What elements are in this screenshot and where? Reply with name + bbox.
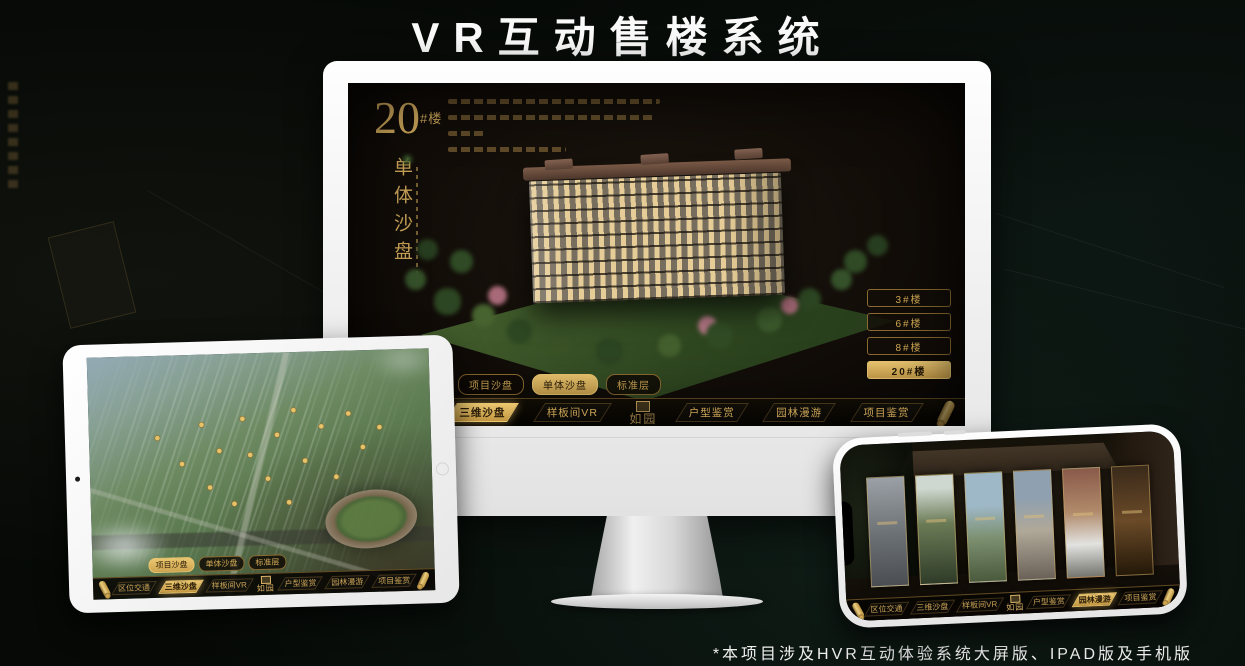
footnote-text: *本项目涉及HVR互动体验系统大屏版、IPAD版及手机版 [713, 640, 1193, 664]
gallery-panel-landscape[interactable] [915, 474, 958, 586]
ipad-tab-project-sandbox[interactable]: 项目沙盘 [148, 557, 194, 573]
building-3d-scene [403, 155, 913, 407]
description-line [448, 99, 660, 104]
description-line [448, 115, 653, 120]
phone-screen: 区位交通 三维沙盘 样板间VR 如园 户型鉴赏 园林漫游 项目鉴赏 [839, 431, 1181, 622]
gallery-panel-autumn[interactable] [1062, 467, 1105, 579]
description-line [448, 131, 484, 136]
seal-icon [636, 401, 650, 412]
floor-button-8[interactable]: 8#楼 [867, 337, 951, 355]
phone-mockup: 区位交通 三维沙盘 样板间VR 如园 户型鉴赏 园林漫游 项目鉴赏 [832, 423, 1188, 629]
tab-project-sandbox[interactable]: 项目沙盘 [458, 374, 524, 395]
panorama-gallery [866, 465, 1154, 588]
page-title: VR互动售楼系统 [0, 4, 1245, 65]
roof-gable [640, 153, 669, 165]
brand-logo-text: 如园 [1006, 603, 1024, 612]
phone-nav-item-garden[interactable]: 园林漫游 [1073, 591, 1116, 608]
background-gold-text-strip [8, 78, 18, 188]
brand-logo: 如园 [629, 401, 657, 425]
scroll-icon[interactable] [1162, 587, 1175, 605]
monitor-stand [591, 516, 723, 598]
monitor-nav-item-garden[interactable]: 园林漫游 [766, 402, 832, 423]
gallery-panel-interior[interactable] [1111, 465, 1154, 577]
brand-logo-text: 如园 [257, 585, 275, 593]
roof-gable [544, 158, 573, 170]
scroll-icon[interactable] [936, 399, 956, 426]
ipad-nav-item-project[interactable]: 项目鉴赏 [373, 573, 415, 589]
ipad-screen: 项目沙盘 单体沙盘 标准层 区位交通 三维沙盘 样板间VR 如园 户型鉴赏 园林… [87, 348, 436, 599]
block-number: 20 [374, 92, 420, 143]
phone-nav-item-vr[interactable]: 样板间VR [957, 596, 1003, 613]
scroll-icon[interactable] [98, 580, 112, 598]
brand-logo: 如园 [256, 576, 274, 593]
scroll-icon[interactable] [851, 601, 865, 619]
floor-button-20[interactable]: 20#楼 [867, 361, 951, 379]
brand-logo: 如园 [1006, 594, 1025, 612]
camera-icon [75, 477, 80, 482]
description-text-lines [448, 99, 666, 163]
gallery-panel-courtyard[interactable] [866, 476, 909, 588]
ipad-mockup: 项目沙盘 单体沙盘 标准层 区位交通 三维沙盘 样板间VR 如园 户型鉴赏 园林… [62, 335, 459, 614]
volume-button[interactable] [898, 431, 932, 437]
phone-nav-item-unit[interactable]: 户型鉴赏 [1028, 593, 1071, 610]
roof-gable [734, 148, 763, 160]
ipad-tab-standard-floor[interactable]: 标准层 [248, 554, 286, 570]
floor-button-6[interactable]: 6#楼 [867, 313, 951, 331]
phone-nav-item-sandbox[interactable]: 三维沙盘 [911, 599, 954, 616]
promo-canvas: VR互动售楼系统 20#楼 单体沙盘 [0, 0, 1245, 666]
brand-logo-text: 如园 [629, 413, 657, 425]
landscape-trees [403, 155, 412, 164]
monitor-nav-item-unit[interactable]: 户型鉴赏 [679, 402, 745, 423]
ipad-nav-item-garden[interactable]: 园林漫游 [326, 574, 368, 590]
phone-nav-item-location[interactable]: 区位交通 [865, 601, 908, 618]
description-line [448, 147, 566, 152]
block-unit: #楼 [420, 111, 442, 126]
scroll-icon[interactable] [417, 571, 430, 589]
floor-button-3[interactable]: 3#楼 [867, 289, 951, 307]
gallery-panel-skyview[interactable] [964, 472, 1007, 584]
gallery-panel-facade[interactable] [1013, 470, 1056, 582]
ipad-nav-item-sandbox[interactable]: 三维沙盘 [160, 579, 202, 595]
floor-button-group: 3#楼 6#楼 8#楼 20#楼 [867, 289, 951, 379]
cloud-overlay [368, 348, 435, 380]
ipad-nav-item-vr[interactable]: 样板间VR [206, 577, 252, 593]
phone-nav-item-project[interactable]: 项目鉴赏 [1119, 589, 1162, 606]
sandbox-sub-tabs: 项目沙盘 单体沙盘 标准层 [458, 374, 661, 395]
monitor-nav-item-project[interactable]: 项目鉴赏 [854, 402, 920, 423]
tab-single-sandbox[interactable]: 单体沙盘 [532, 374, 598, 395]
monitor-nav-item-sandbox[interactable]: 三维沙盘 [449, 402, 515, 423]
ipad-nav-item-unit[interactable]: 户型鉴赏 [279, 575, 321, 591]
monitor-stand-base [551, 594, 763, 609]
ipad-nav-item-location[interactable]: 区位交通 [113, 580, 155, 596]
building-render [529, 173, 785, 304]
home-button[interactable] [436, 462, 449, 475]
block-title: 20#楼 [374, 95, 442, 141]
ipad-tab-single-sandbox[interactable]: 单体沙盘 [198, 555, 244, 571]
monitor-nav-item-vr[interactable]: 样板间VR [537, 402, 608, 423]
volume-button[interactable] [944, 430, 966, 435]
tab-standard-floor[interactable]: 标准层 [606, 374, 661, 395]
